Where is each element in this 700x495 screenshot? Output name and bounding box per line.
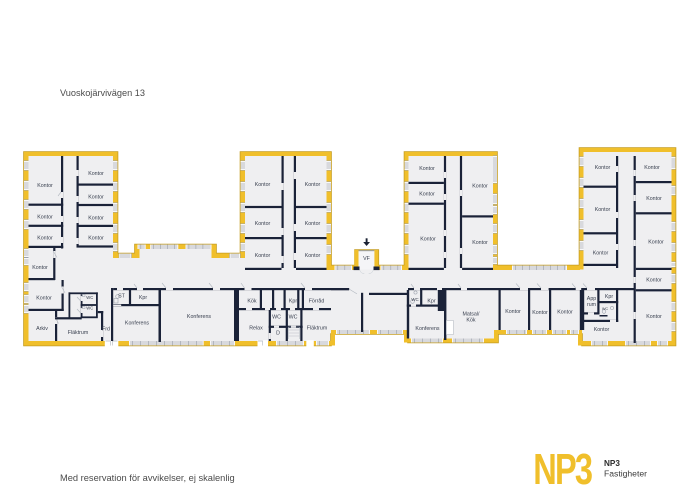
svg-text:Kök: Kök	[247, 299, 256, 305]
svg-text:Kpr: Kpr	[139, 295, 147, 301]
svg-text:Kontor: Kontor	[420, 237, 436, 243]
svg-text:WC: WC	[411, 297, 418, 302]
svg-text:Kontor: Kontor	[595, 207, 611, 213]
svg-text:Kontor: Kontor	[37, 183, 53, 189]
svg-text:WC: WC	[272, 315, 281, 321]
svg-text:Kontor: Kontor	[594, 327, 610, 333]
svg-text:Fläktrum: Fläktrum	[307, 326, 328, 332]
svg-text:Konferens: Konferens	[125, 321, 149, 327]
svg-text:Konferens: Konferens	[415, 326, 439, 332]
svg-text:Kontor: Kontor	[557, 310, 573, 316]
svg-text:Kontor: Kontor	[593, 251, 609, 257]
svg-text:Kontor: Kontor	[305, 182, 321, 188]
svg-text:Kontor: Kontor	[88, 171, 104, 177]
svg-text:Med reservation för avvikelser: Med reservation för avvikelser, ej skale…	[60, 473, 235, 483]
svg-text:Kontor: Kontor	[419, 192, 435, 198]
svg-text:Fastigheter: Fastigheter	[604, 469, 647, 479]
svg-text:Fläktrum: Fläktrum	[68, 330, 89, 336]
svg-text:Vuoskojärvivägen 13: Vuoskojärvivägen 13	[60, 88, 145, 98]
svg-text:Kontor: Kontor	[88, 216, 104, 222]
svg-text:Kontor: Kontor	[648, 240, 664, 246]
svg-text:Kontor: Kontor	[419, 166, 435, 172]
svg-text:Kpr: Kpr	[427, 299, 435, 305]
svg-text:WC: WC	[289, 315, 298, 321]
svg-text:Kontor: Kontor	[37, 236, 53, 242]
svg-text:Kpr: Kpr	[289, 299, 297, 305]
svg-text:Kontor: Kontor	[532, 310, 548, 316]
svg-text:Kontor: Kontor	[305, 253, 321, 259]
svg-text:Kontor: Kontor	[644, 165, 660, 171]
svg-text:ST: ST	[118, 294, 126, 300]
svg-text:rum: rum	[587, 302, 597, 308]
svg-text:Konferens: Konferens	[187, 314, 211, 320]
svg-text:Kontor: Kontor	[472, 184, 488, 190]
svg-text:Kontor: Kontor	[36, 296, 52, 302]
svg-text:NP3: NP3	[604, 459, 620, 468]
svg-text:WC: WC	[86, 295, 93, 300]
svg-text:Kontor: Kontor	[646, 314, 662, 320]
svg-text:Relax: Relax	[249, 326, 263, 332]
svg-text:VF: VF	[363, 256, 371, 262]
svg-text:Kontor: Kontor	[255, 253, 271, 259]
svg-text:Förråd: Förråd	[309, 298, 325, 305]
svg-text:Frd: Frd	[102, 327, 110, 333]
svg-text:Kontor: Kontor	[88, 195, 104, 201]
svg-text:D: D	[276, 331, 280, 337]
svg-text:WC: WC	[86, 306, 93, 311]
svg-text:Kontor: Kontor	[646, 196, 662, 202]
svg-text:Kontor: Kontor	[472, 240, 488, 246]
svg-text:Kontor: Kontor	[255, 182, 271, 188]
svg-text:Kpr: Kpr	[605, 294, 613, 300]
svg-text:Kontor: Kontor	[646, 278, 662, 284]
svg-text:Kök: Kök	[466, 318, 475, 324]
svg-text:Kontor: Kontor	[505, 309, 521, 315]
svg-text:Kontor: Kontor	[32, 265, 48, 271]
svg-text:Kontor: Kontor	[88, 236, 104, 242]
svg-text:WC: WC	[602, 307, 609, 311]
svg-text:Kontor: Kontor	[305, 221, 321, 227]
svg-text:Arkiv: Arkiv	[36, 326, 48, 332]
svg-text:Kontor: Kontor	[595, 165, 611, 171]
svg-text:Kontor: Kontor	[255, 221, 271, 227]
svg-text:Kontor: Kontor	[37, 215, 53, 221]
svg-text:NP3: NP3	[533, 445, 592, 494]
